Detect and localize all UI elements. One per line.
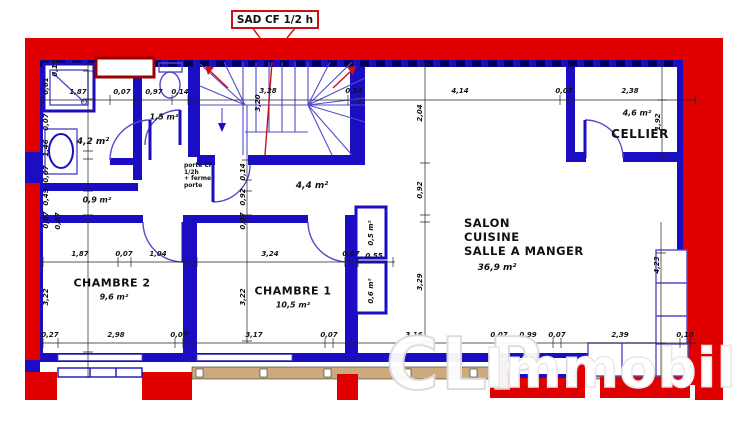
dimension-label: 3,22 <box>239 288 247 305</box>
dimension-label: 0,07 <box>555 87 572 95</box>
dimension-label: 4,23 <box>653 256 661 273</box>
dimension-label: 1,92 <box>654 113 662 130</box>
dimension-label: 0,14 <box>239 163 247 180</box>
dimension-label: 0,07 <box>342 250 359 258</box>
hall-area-label: 4,4 m² <box>296 181 328 191</box>
chambre2-name-label: CHAMBRE 2 <box>73 277 150 290</box>
dimension-label: 1,87 <box>71 250 88 258</box>
dimension-label: 0,49 <box>42 188 50 205</box>
dimension-label: 0,07 <box>42 211 50 228</box>
dimension-label: 0,92 <box>239 188 247 205</box>
dimension-label: 1,46 <box>42 139 50 156</box>
dimension-label: 0,27 <box>41 331 58 339</box>
section-line <box>205 62 356 155</box>
dimension-label: 0,14 <box>171 88 188 96</box>
dimension-label: 3,20 <box>254 94 262 111</box>
dimension-label: 3,24 <box>261 250 278 258</box>
dimension-label: 0,55 <box>365 252 382 260</box>
chambre1-area-label: 10,5 m² <box>276 301 310 310</box>
dimension-label: 1,04 <box>149 250 166 258</box>
dimension-label: 0,07 <box>239 212 247 229</box>
walls-blue <box>25 60 683 372</box>
dimension-label: 0,07 <box>115 250 132 258</box>
dimension-label: 0,07 <box>42 165 50 182</box>
bathroom-area-label: 4,2 m² <box>77 137 109 147</box>
dimension-label: 1,87 <box>69 88 86 96</box>
dimension-label: 3,17 <box>245 331 262 339</box>
dimension-label: 3,22 <box>42 288 50 305</box>
salon-name-line2: CUISINE <box>464 230 520 244</box>
vanity <box>96 58 154 77</box>
closet-top-area-label: 0,5 m² <box>367 220 375 245</box>
dimension-label: 0,97 <box>145 88 162 96</box>
dimension-label: 0,07 <box>320 331 337 339</box>
dimension-label: 0,92 <box>416 181 424 198</box>
dimension-label: 2,38 <box>621 87 638 95</box>
floor-plan: SAD CF 1/2 h 4,2 m² 1,5 m² 0,9 m² 4,4 m²… <box>0 0 738 437</box>
dimension-label: 0,07 <box>170 331 187 339</box>
cellier-area-label: 4,6 m² <box>623 109 652 118</box>
staircase <box>200 62 365 155</box>
salon-area-label: 36,9 m² <box>478 263 517 273</box>
storage-area-label: 0,9 m² <box>83 196 112 205</box>
dimension-label: 0,61 <box>42 77 50 94</box>
dimension-label: 0,14 <box>345 87 362 95</box>
dimension-label: 3,29 <box>416 273 424 290</box>
salon-name-line3: SALLE A MANGER <box>464 244 584 258</box>
closet-bottom-area-label: 0,6 m² <box>367 278 375 303</box>
dimension-label: 4,14 <box>451 87 468 95</box>
fire-rating-label: SAD CF 1/2 h <box>237 14 313 26</box>
fire-rating-callout: SAD CF 1/2 h <box>231 10 319 29</box>
dimension-label: 0,15 <box>51 59 59 76</box>
chambre1-name-label: CHAMBRE 1 <box>254 285 331 298</box>
watermark-text: Immobilier <box>484 342 738 396</box>
fire-door-note: porte CF 1/2h + ferme porte <box>184 163 213 189</box>
balcony-railing <box>58 368 142 377</box>
dimension-label: 2,04 <box>416 104 424 121</box>
dimension-label: 0,07 <box>54 212 62 229</box>
dimension-label: 0,07 <box>113 88 130 96</box>
dimension-label: 0,07 <box>42 113 50 130</box>
salon-name-line1: SALON <box>464 216 510 230</box>
wc-area-label: 1,5 m² <box>150 113 179 122</box>
chambre2-area-label: 9,6 m² <box>100 293 129 302</box>
dimension-label: 2,98 <box>107 331 124 339</box>
